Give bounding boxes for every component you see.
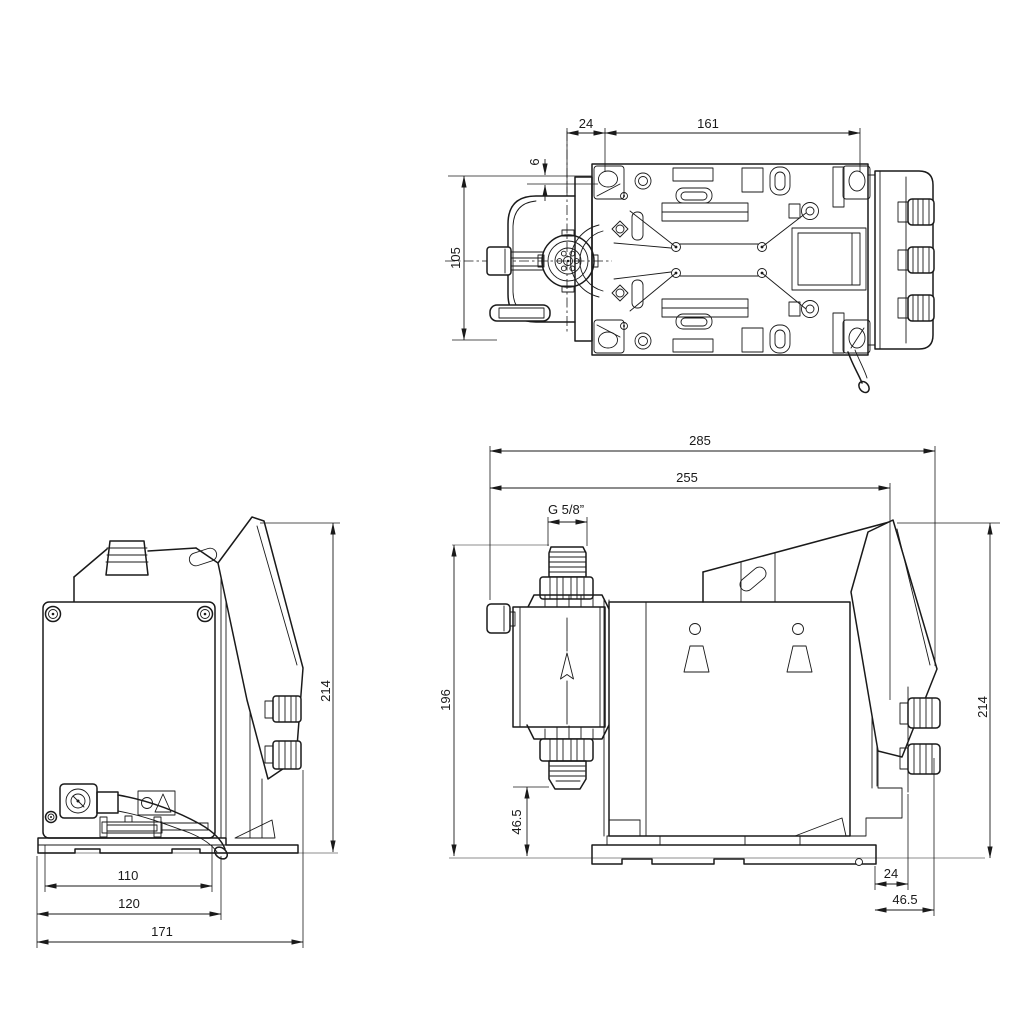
dim-panel-offset: 46.5	[875, 758, 934, 916]
technical-drawing-page: 24 161 6 105	[0, 0, 1024, 1024]
top-cover-rear	[74, 541, 218, 602]
dim-knob-offset: 24	[875, 794, 908, 890]
back-panel	[43, 602, 215, 838]
deaeration-knob	[487, 604, 510, 633]
dim-label-24-side: 24	[884, 866, 898, 881]
motor-cable-clamp	[490, 305, 550, 321]
dim-label-6: 6	[527, 158, 542, 165]
dim-label-46-5-valve: 46.5	[509, 809, 524, 834]
power-cable-top-view	[848, 350, 871, 394]
dim-label-161: 161	[697, 116, 719, 131]
side-view: 285 255 G 5/8” 196 46.5 214	[438, 433, 1000, 916]
dim-label-171: 171	[151, 924, 173, 939]
dim-label-thread: G 5/8”	[548, 502, 584, 517]
pump-head	[538, 225, 603, 297]
dim-label-120: 120	[118, 896, 140, 911]
mounting-plate	[592, 164, 870, 355]
handle-recess-side	[737, 564, 768, 593]
bottom-view: 24 161 6 105	[445, 116, 934, 394]
dim-label-255: 255	[676, 470, 698, 485]
dim-label-214-rear: 214	[318, 680, 333, 702]
dim-valve-clearance: 46.5	[509, 787, 549, 856]
dim-label-285: 285	[689, 433, 711, 448]
dim-height-to-connection: 196	[438, 545, 454, 856]
pump-dimensional-drawing: 24 161 6 105	[0, 0, 1024, 1024]
base-plate-side	[592, 836, 876, 866]
control-panel-rear	[218, 517, 303, 779]
dim-label-110: 110	[118, 868, 139, 883]
handle-recess-rear	[188, 546, 219, 567]
rear-foot-bracket	[846, 751, 902, 836]
rear-view: 214 110 120 171	[37, 517, 340, 948]
dim-hole-spacing: 161	[605, 116, 860, 133]
dim-label-196: 196	[438, 689, 453, 711]
dim-label-214-side: 214	[975, 696, 990, 718]
dosing-head	[487, 604, 605, 727]
discharge-valve	[527, 547, 609, 609]
dim-label-46-5-panel: 46.5	[892, 892, 917, 907]
dim-label-24-top: 24	[579, 116, 593, 131]
dim-connection-thread: G 5/8”	[548, 502, 587, 546]
dim-enclosure-width: 110	[45, 845, 212, 892]
suction-valve	[527, 725, 609, 789]
pump-housing-side	[609, 602, 850, 836]
dim-label-105: 105	[448, 247, 463, 269]
base-plate-rear	[38, 838, 298, 853]
base-wedge-rear	[235, 820, 275, 838]
